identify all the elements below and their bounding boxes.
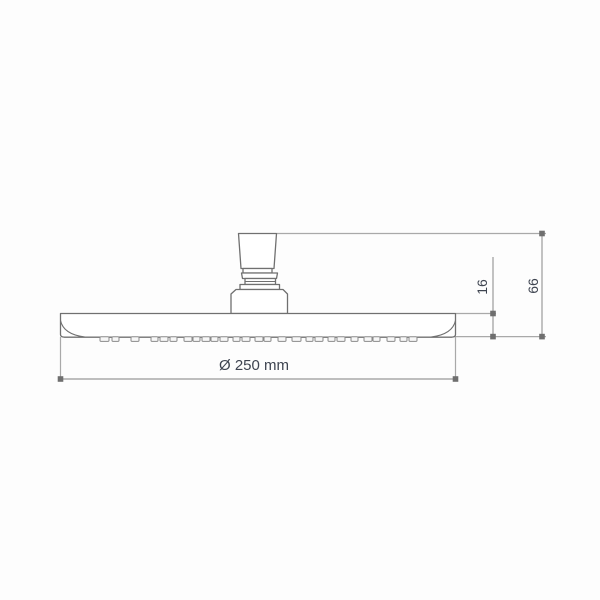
nozzle (184, 337, 192, 342)
nozzle (112, 337, 119, 342)
nozzle (264, 337, 271, 342)
nozzle (292, 337, 301, 342)
disc-outline (61, 314, 456, 338)
thickness-label: 16 (474, 279, 490, 295)
nozzle (255, 337, 263, 342)
technical-drawing-canvas: 16 66 Ø 250 mm (0, 0, 600, 600)
dimension-annotations: 16 66 Ø 250 mm (58, 231, 545, 382)
nozzle (400, 337, 407, 342)
nozzle (387, 337, 395, 342)
diameter-label: Ø 250 mm (219, 357, 289, 374)
dimension-marker (453, 376, 459, 382)
nozzle (100, 337, 109, 342)
extension-lines (61, 234, 547, 380)
nozzle (151, 337, 158, 342)
nozzle (409, 337, 417, 342)
nozzle (315, 337, 323, 342)
dimension-marker (490, 334, 496, 340)
dimension-thickness: 16 (474, 257, 496, 339)
nozzle (211, 337, 218, 342)
nozzle (328, 337, 335, 342)
nozzle (202, 337, 210, 342)
nozzle (242, 337, 250, 342)
nozzle (373, 337, 380, 342)
cylinder-step (243, 269, 272, 274)
connector-cylinder (239, 234, 277, 274)
collar-ring-upper (242, 273, 278, 279)
nozzle (131, 337, 139, 342)
base-outline (231, 290, 288, 314)
dimension-diameter: Ø 250 mm (58, 357, 459, 382)
dimension-marker (539, 231, 545, 237)
dimension-marker (490, 311, 496, 317)
nozzle (233, 337, 240, 342)
nozzle (364, 337, 372, 342)
nozzle (306, 337, 313, 342)
dimension-height: 66 (525, 231, 545, 340)
nozzle (160, 337, 168, 342)
dimension-marker (539, 334, 545, 340)
cylinder-outline (239, 234, 277, 269)
dimension-marker (58, 376, 64, 382)
connector-collar (240, 273, 280, 290)
nozzle (351, 337, 358, 342)
shower-head-part (61, 234, 456, 342)
collar-ring-lower (240, 285, 280, 290)
nozzle (220, 337, 228, 342)
connector-base (231, 290, 288, 314)
nozzle (337, 337, 345, 342)
nozzle (170, 337, 177, 342)
shower-head-diagram: 16 66 Ø 250 mm (0, 0, 600, 600)
nozzle (278, 337, 286, 342)
head-disc (61, 314, 456, 342)
height-label: 66 (525, 278, 541, 294)
nozzle (193, 337, 200, 342)
